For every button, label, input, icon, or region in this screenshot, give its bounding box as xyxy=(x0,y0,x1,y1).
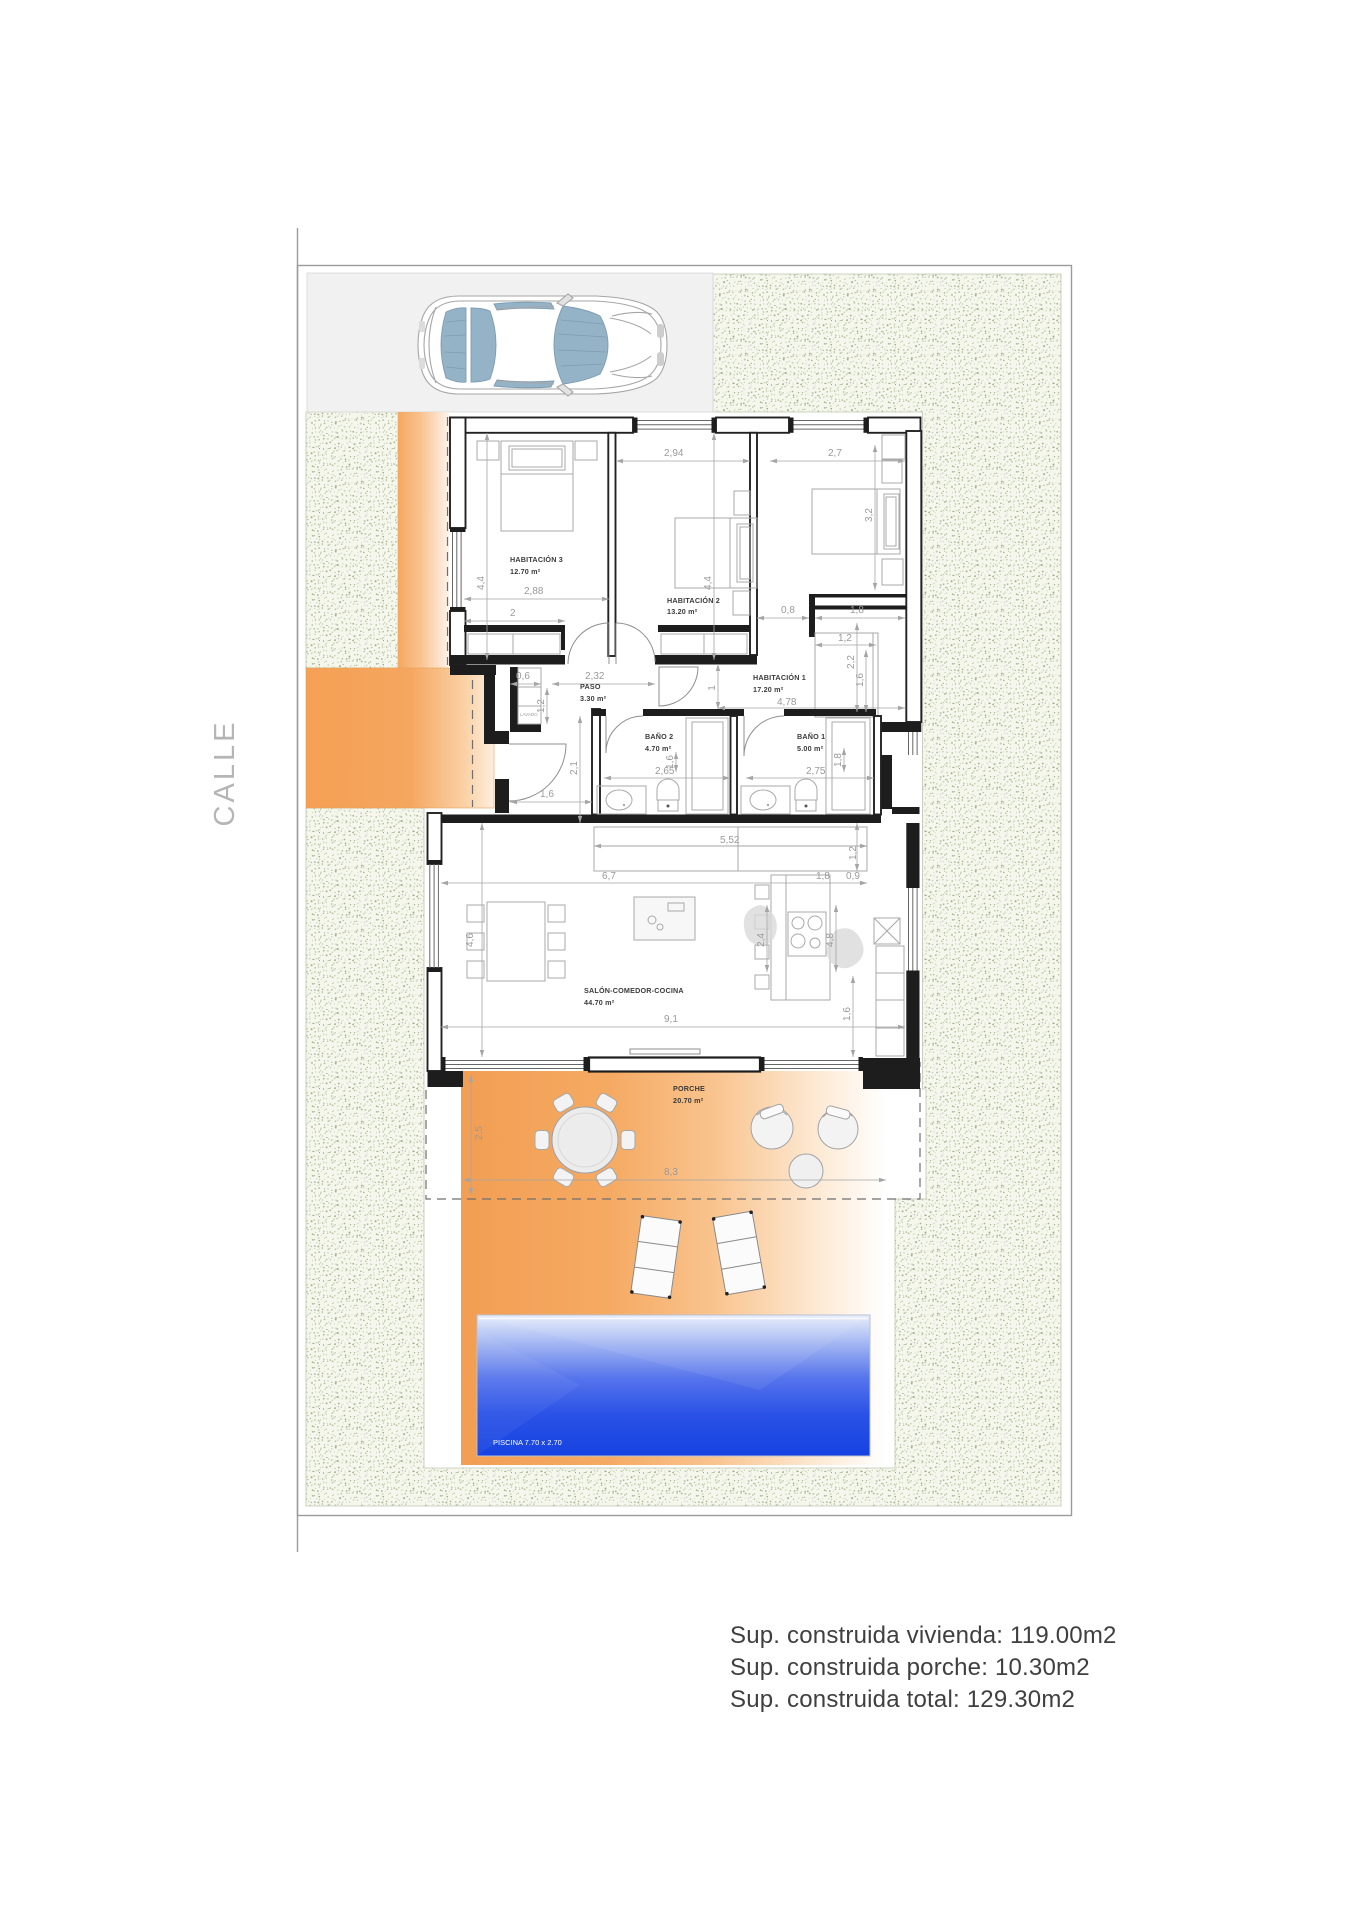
svg-text:2,5: 2,5 xyxy=(474,1126,485,1140)
svg-text:Sup. construida vivienda: 119.: Sup. construida vivienda: 119.00m2 xyxy=(730,1622,1117,1649)
svg-text:4,6: 4,6 xyxy=(465,933,476,947)
svg-text:8,3: 8,3 xyxy=(664,1167,678,1178)
svg-text:0,9: 0,9 xyxy=(846,871,860,882)
svg-text:PORCHE: PORCHE xyxy=(673,1084,705,1093)
svg-text:4,8: 4,8 xyxy=(825,933,836,947)
svg-text:HABITACIÓN 1: HABITACIÓN 1 xyxy=(753,673,806,682)
svg-text:1,6: 1,6 xyxy=(665,755,676,769)
svg-text:1: 1 xyxy=(707,685,718,691)
svg-text:CALLE: CALLE xyxy=(209,720,241,827)
svg-text:4,78: 4,78 xyxy=(777,697,797,708)
svg-text:2,4: 2,4 xyxy=(756,933,767,947)
svg-text:2,2: 2,2 xyxy=(846,655,857,669)
svg-text:Sup. construida porche: 10.30m: Sup. construida porche: 10.30m2 xyxy=(730,1654,1090,1681)
svg-text:SALÓN-COMEDOR-COCINA: SALÓN-COMEDOR-COCINA xyxy=(584,986,684,995)
svg-text:4.70 m²: 4.70 m² xyxy=(645,744,672,753)
svg-text:BAÑO 2: BAÑO 2 xyxy=(645,732,673,741)
svg-text:3.30 m²: 3.30 m² xyxy=(580,694,607,703)
svg-text:2,7: 2,7 xyxy=(828,448,842,459)
svg-text:2,94: 2,94 xyxy=(664,448,684,459)
svg-text:BAÑO 1: BAÑO 1 xyxy=(797,732,825,741)
svg-text:HABITACIÓN 3: HABITACIÓN 3 xyxy=(510,555,563,564)
svg-text:1,6: 1,6 xyxy=(842,1007,853,1021)
svg-text:PASO: PASO xyxy=(580,682,601,691)
svg-text:4,4: 4,4 xyxy=(476,576,487,590)
svg-text:6,7: 6,7 xyxy=(602,871,616,882)
svg-text:12.70 m²: 12.70 m² xyxy=(510,567,541,576)
svg-text:HABITACIÓN 2: HABITACIÓN 2 xyxy=(667,596,720,605)
svg-text:2,88: 2,88 xyxy=(524,586,544,597)
svg-text:1,2: 1,2 xyxy=(536,699,547,713)
svg-text:Sup. construida total: 129.30m: Sup. construida total: 129.30m2 xyxy=(730,1686,1075,1713)
svg-text:4,4: 4,4 xyxy=(703,576,714,590)
svg-text:1,2: 1,2 xyxy=(838,633,852,644)
svg-text:13.20 m²: 13.20 m² xyxy=(667,607,698,616)
svg-text:17.20 m²: 17.20 m² xyxy=(753,685,784,694)
svg-text:2,75: 2,75 xyxy=(806,766,826,777)
svg-text:3,2: 3,2 xyxy=(864,508,875,522)
svg-text:44.70 m²: 44.70 m² xyxy=(584,998,615,1007)
svg-text:0,6: 0,6 xyxy=(516,671,530,682)
svg-text:2,1: 2,1 xyxy=(569,761,580,775)
svg-text:5,52: 5,52 xyxy=(720,835,740,846)
svg-text:5.00 m²: 5.00 m² xyxy=(797,744,824,753)
svg-text:2: 2 xyxy=(510,608,516,619)
svg-text:1,8: 1,8 xyxy=(850,605,864,616)
svg-text:1,8: 1,8 xyxy=(816,871,830,882)
svg-text:0,8: 0,8 xyxy=(781,605,795,616)
svg-text:1,6: 1,6 xyxy=(540,789,554,800)
svg-text:2,32: 2,32 xyxy=(585,671,605,682)
svg-text:PISCINA 7.70 x 2.70: PISCINA 7.70 x 2.70 xyxy=(493,1438,562,1447)
svg-text:1,8: 1,8 xyxy=(833,753,844,767)
svg-text:1,6: 1,6 xyxy=(855,673,866,687)
svg-text:1,2: 1,2 xyxy=(848,846,859,860)
svg-text:20.70 m²: 20.70 m² xyxy=(673,1096,704,1105)
svg-text:9,1: 9,1 xyxy=(664,1014,678,1025)
